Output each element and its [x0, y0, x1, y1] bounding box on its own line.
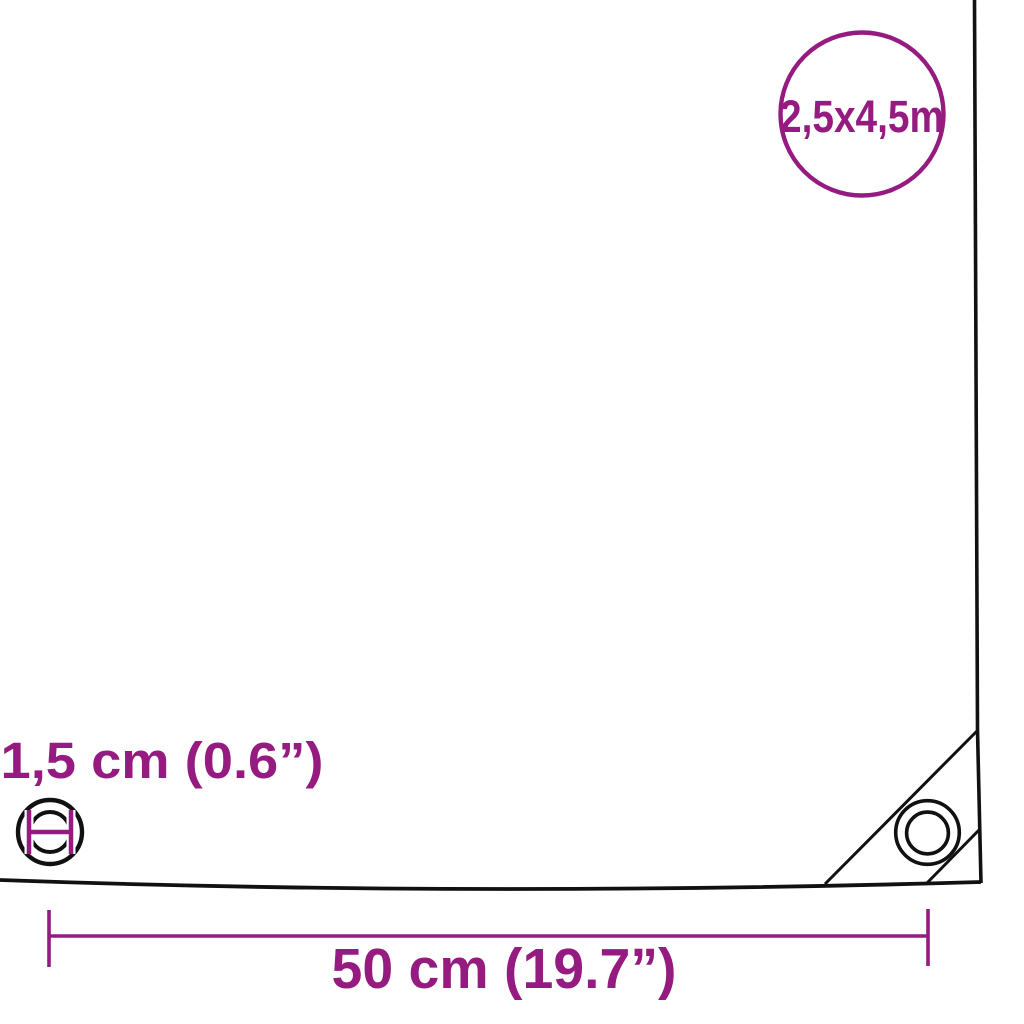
svg-text:1,5 cm (0.6”): 1,5 cm (0.6”) [1, 732, 324, 789]
svg-text:50 cm (19.7”): 50 cm (19.7”) [332, 937, 677, 1001]
svg-text:2,5x4,5m: 2,5x4,5m [780, 91, 944, 142]
